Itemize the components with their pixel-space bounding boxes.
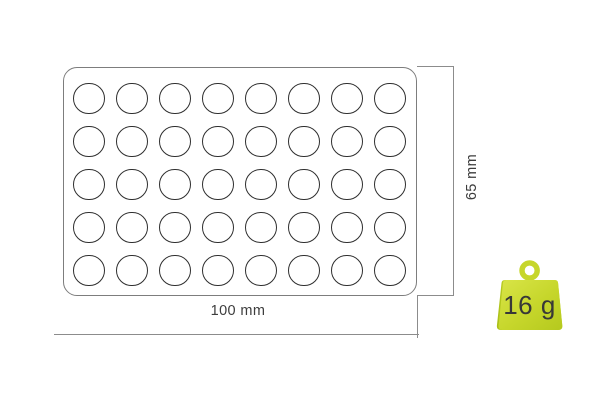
cavity-circle [73, 212, 105, 244]
cavity-circle [288, 255, 320, 287]
cavity-circle [202, 83, 234, 115]
cavity-circle [202, 255, 234, 287]
cavity-circle [331, 255, 363, 287]
cavity-circle [331, 212, 363, 244]
mold-dimension-diagram: 100 mm 65 mm 16 g [0, 0, 600, 405]
cavity-circle [159, 212, 191, 244]
cavity-circle [73, 255, 105, 287]
cavity-circle [374, 212, 406, 244]
cavity-circle [245, 169, 277, 201]
cavity-circle [288, 83, 320, 115]
height-extension-line-top [417, 66, 454, 67]
mold-outline [63, 67, 417, 296]
cavity-circle [374, 83, 406, 115]
width-extension-line-right [417, 296, 418, 338]
cavity-circle [202, 126, 234, 158]
cavity-circle [73, 83, 105, 115]
cavity-circle [331, 126, 363, 158]
cavity-circle [331, 83, 363, 115]
width-dimension-label: 100 mm [178, 303, 298, 319]
cavity-circle [374, 255, 406, 287]
weight-handle-ring [522, 263, 537, 278]
cavity-circle [331, 169, 363, 201]
cavity-grid [64, 68, 416, 295]
cavity-circle [116, 169, 148, 201]
cavity-circle [245, 212, 277, 244]
height-dimension-line [453, 66, 454, 296]
cavity-circle [202, 169, 234, 201]
weight-label: 16 g [492, 283, 567, 327]
cavity-circle [116, 212, 148, 244]
cavity-circle [159, 126, 191, 158]
cavity-circle [116, 255, 148, 287]
cavity-circle [202, 212, 234, 244]
cavity-circle [288, 126, 320, 158]
cavity-circle [159, 255, 191, 287]
cavity-circle [288, 169, 320, 201]
cavity-circle [245, 126, 277, 158]
height-extension-line-bottom [417, 295, 454, 296]
cavity-circle [159, 169, 191, 201]
weight-icon: 16 g [492, 258, 567, 338]
cavity-circle [245, 255, 277, 287]
cavity-circle [116, 83, 148, 115]
cavity-circle [73, 169, 105, 201]
height-dimension-label: 65 mm [464, 137, 480, 217]
cavity-circle [374, 126, 406, 158]
cavity-circle [374, 169, 406, 201]
cavity-circle [73, 126, 105, 158]
cavity-circle [116, 126, 148, 158]
cavity-circle [159, 83, 191, 115]
cavity-circle [288, 212, 320, 244]
width-dimension-line [54, 334, 419, 335]
cavity-circle [245, 83, 277, 115]
